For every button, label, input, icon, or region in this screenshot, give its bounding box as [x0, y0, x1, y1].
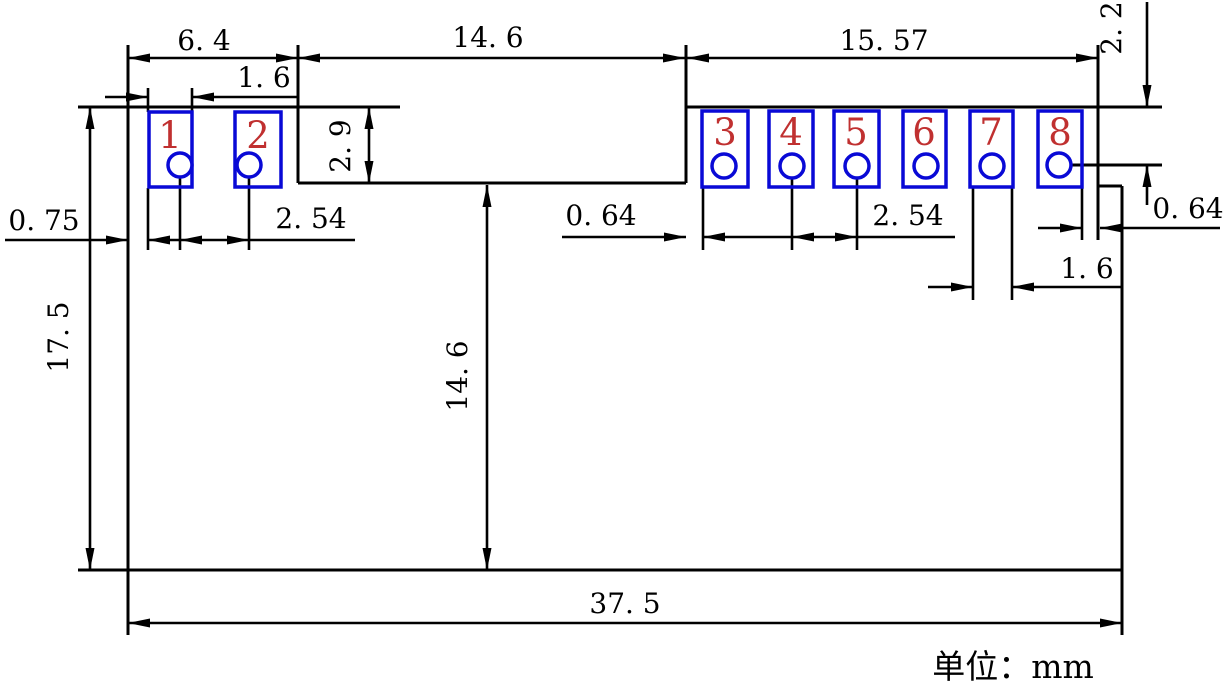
arrow-14.6-bottom	[483, 548, 492, 570]
arrow-left-14.6	[298, 54, 320, 63]
footprint-drawing: 1 2 3 4 5 6 7 8 6. 4 1. 6 14. 6 15. 57 2…	[0, 0, 1225, 692]
arrow-2.54R-right	[835, 233, 857, 242]
dim-pad7-width: 1. 6	[1060, 252, 1113, 285]
dim-overall-height: 17. 5	[42, 301, 75, 372]
dimension-lines	[5, 2, 1220, 623]
hole-3	[712, 154, 736, 178]
arrow-2.9-top	[365, 107, 374, 129]
dim-notch-height: 14. 6	[441, 340, 474, 411]
pad-4-number: 4	[779, 111, 803, 154]
dim-top-left-span: 6. 4	[177, 24, 230, 57]
arrow-17.5-top	[86, 107, 95, 129]
arrow-37.5-left	[128, 619, 150, 628]
dim-overall-width: 37. 5	[589, 587, 660, 620]
arrow-2.2-down	[1143, 85, 1152, 107]
unit-label: 单位：mm	[932, 647, 1094, 686]
hole-5	[845, 154, 869, 178]
dim-left-pitch: 2. 54	[275, 202, 346, 235]
dim-left-margin: 0. 75	[8, 204, 79, 237]
arrow-pad7-width-right	[1012, 283, 1034, 292]
arrow-pad7-width-left	[951, 283, 973, 292]
arrow-0.75-left	[106, 236, 128, 245]
pad-7-number: 7	[979, 111, 1003, 154]
arrow-17.5-bottom	[86, 548, 95, 570]
hole-7	[980, 154, 1004, 178]
dimension-labels: 6. 4 1. 6 14. 6 15. 57 2. 2 2. 9 0. 75 2…	[8, 1, 1223, 686]
arrow-left-6.4	[128, 54, 150, 63]
dim-top-middle-span: 14. 6	[452, 21, 523, 54]
arrow-pad1-width-left	[126, 93, 148, 102]
pad-2-number: 2	[246, 114, 270, 157]
hole-4	[780, 154, 804, 178]
dim-right-pitch: 2. 54	[872, 199, 943, 232]
pad-8-number: 8	[1048, 111, 1072, 154]
pad-5-number: 5	[844, 111, 868, 154]
dimension-drawing-canvas: 1 2 3 4 5 6 7 8 6. 4 1. 6 14. 6 15. 57 2…	[0, 0, 1225, 692]
arrow-2.54R-left	[792, 233, 814, 242]
arrow-0.64R-right	[1100, 224, 1122, 233]
arrow-2.9-bottom	[365, 161, 374, 183]
extension-lines	[148, 88, 1082, 300]
arrow-14.6-top	[483, 185, 492, 207]
dim-notch-depth: 2. 9	[324, 119, 357, 172]
dim-pad1-width: 1. 6	[237, 61, 290, 94]
pad-3-number: 3	[713, 111, 737, 154]
pad-numbers: 1 2 3 4 5 6 7 8	[158, 111, 1072, 157]
dim-pad8-gap: 0. 64	[1152, 192, 1223, 225]
arrow-0.64L-right	[703, 233, 725, 242]
pad-6-number: 6	[912, 111, 936, 154]
arrow-0.64L-left	[664, 233, 686, 242]
dim-hole-row-offset: 2. 2	[1095, 1, 1128, 54]
dim-top-right-span: 15. 57	[839, 24, 928, 57]
hole-8	[1047, 153, 1071, 177]
arrow-right-14.6	[663, 54, 685, 63]
arrow-37.5-right	[1100, 619, 1122, 628]
pads	[149, 111, 1082, 187]
pad-1-number: 1	[158, 114, 182, 157]
dim-pad3-gap: 0. 64	[565, 199, 636, 232]
arrow-0.75-right	[148, 236, 170, 245]
arrow-0.64R-left	[1060, 224, 1082, 233]
arrow-2.54L-right	[227, 236, 249, 245]
arrow-left-15.57	[687, 54, 709, 63]
arrow-2.2-up	[1143, 165, 1152, 187]
hole-6	[914, 154, 938, 178]
arrow-pad1-width-right	[192, 93, 214, 102]
arrow-2.54L-left	[180, 236, 202, 245]
